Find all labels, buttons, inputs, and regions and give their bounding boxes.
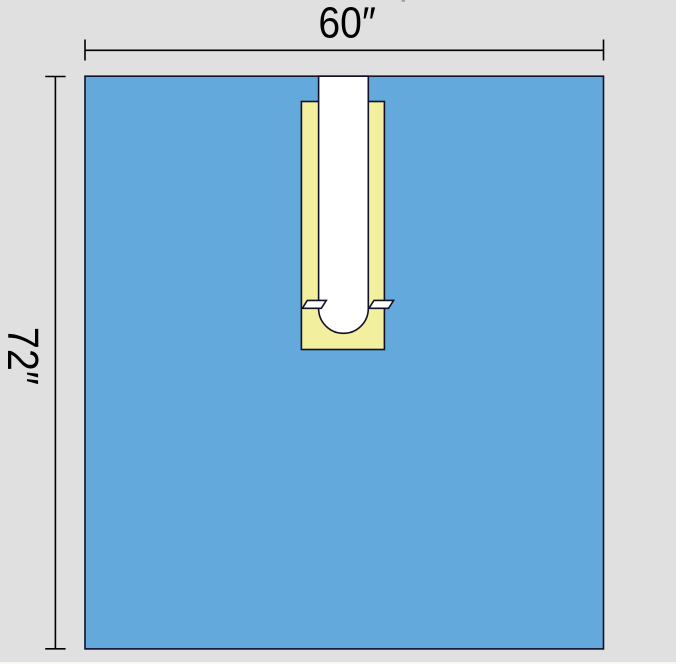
svg-text:60″: 60″ bbox=[318, 0, 375, 47]
svg-text:72″: 72″ bbox=[0, 327, 48, 385]
